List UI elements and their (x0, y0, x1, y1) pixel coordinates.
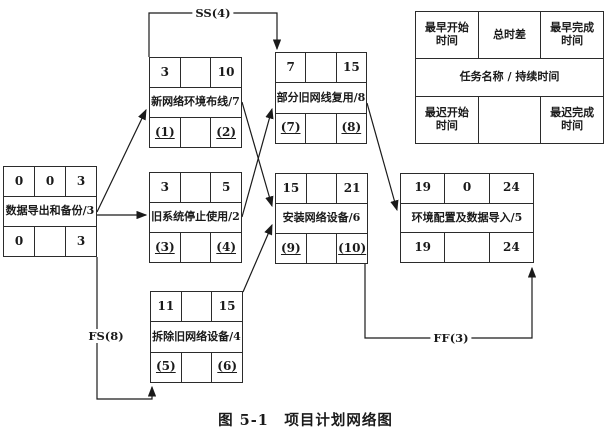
task-box-cabling: 3 10 新网络环境布线/7 (1) (2) (149, 57, 242, 148)
cell-bottom-middle (307, 234, 337, 263)
cell-total-float (181, 173, 211, 202)
cell-total-float: 0 (35, 167, 65, 196)
cell-blank-3: (3) (150, 233, 180, 262)
task-name: 旧系统停止使用/2 (150, 203, 241, 232)
legend-key-box: 最早开始时间 总时差 最早完成时间 任务名称 / 持续时间 最迟开始时间 最迟完… (415, 11, 604, 144)
cell-bottom-middle (35, 227, 65, 256)
edge-stopold-to-reuse-arrow (242, 109, 272, 217)
cell-total-float (307, 174, 337, 203)
legend-task-name-duration: 任务名称 / 持续时间 (416, 59, 603, 96)
cell-bottom-middle (445, 233, 488, 262)
cell-total-float: 0 (445, 174, 488, 203)
cell-bottom-middle (181, 118, 211, 147)
task-box-stop-old: 3 5 旧系统停止使用/2 (3) (4) (149, 172, 242, 263)
legend-bottom-middle (479, 97, 541, 143)
edge-fs-backup-to-remove-arrow (97, 257, 152, 399)
task-box-config: 19 0 24 环境配置及数据导入/5 19 24 (400, 173, 534, 263)
legend-total-float: 总时差 (479, 12, 541, 58)
cell-early-finish: 5 (211, 173, 241, 202)
edge-label-ss: SS(4) (192, 6, 233, 20)
cell-blank-8: (8) (337, 114, 366, 143)
cell-early-finish: 15 (212, 292, 242, 321)
cell-early-finish: 24 (490, 174, 533, 203)
cell-early-start: 7 (276, 53, 305, 82)
edge-ff-install-to-config-arrow (365, 264, 532, 338)
cell-blank-7: (7) (276, 114, 305, 143)
cell-blank-4: (4) (211, 233, 241, 262)
task-box-install: 15 21 安装网络设备/6 (9) (10) (275, 173, 368, 264)
task-box-backup: 0 0 3 数据导出和备份/3 0 3 (3, 166, 97, 257)
legend-early-finish: 最早完成时间 (541, 12, 603, 58)
edge-remove-to-install-arrow (243, 225, 272, 292)
cell-early-finish: 21 (337, 174, 367, 203)
task-box-remove: 11 15 拆除旧网络设备/4 (5) (6) (150, 291, 243, 383)
legend-late-finish: 最迟完成时间 (541, 97, 603, 143)
task-name: 数据导出和备份/3 (4, 197, 96, 226)
cell-early-start: 19 (401, 174, 444, 203)
cell-early-start: 0 (4, 167, 34, 196)
cell-late-finish: 24 (490, 233, 533, 262)
cell-late-start: 19 (401, 233, 444, 262)
cell-blank-9: (9) (276, 234, 306, 263)
cell-bottom-middle (181, 233, 211, 262)
cell-blank-6: (6) (212, 353, 242, 382)
cell-bottom-middle (182, 353, 212, 382)
figure-caption: 图 5-1 项目计划网络图 (0, 409, 611, 430)
cell-late-start: 0 (4, 227, 34, 256)
cell-early-finish: 15 (337, 53, 366, 82)
task-name: 环境配置及数据导入/5 (401, 204, 533, 233)
cell-early-start: 3 (150, 58, 180, 87)
task-box-reuse: 7 15 部分旧网线复用/8 (7) (8) (275, 52, 367, 144)
cell-blank-1: (1) (150, 118, 180, 147)
cell-blank-2: (2) (211, 118, 241, 147)
edge-backup-to-cabling-arrow (97, 110, 146, 212)
legend-early-start: 最早开始时间 (416, 12, 478, 58)
cell-early-start: 11 (151, 292, 181, 321)
legend-late-start: 最迟开始时间 (416, 97, 478, 143)
cell-early-finish: 3 (66, 167, 96, 196)
task-name: 部分旧网线复用/8 (276, 83, 366, 112)
cell-blank-5: (5) (151, 353, 181, 382)
cell-early-finish: 10 (211, 58, 241, 87)
cell-early-start: 3 (150, 173, 180, 202)
edge-cabling-to-install-arrow (242, 102, 272, 206)
cell-total-float (306, 53, 335, 82)
cell-total-float (182, 292, 212, 321)
cell-early-start: 15 (276, 174, 306, 203)
cell-late-finish: 3 (66, 227, 96, 256)
edge-reuse-to-config-arrow (367, 103, 397, 210)
task-name: 新网络环境布线/7 (150, 88, 241, 117)
cell-total-float (181, 58, 211, 87)
network-diagram: SS(4) FS(8) FF(3) 0 0 3 数据导出和备份/3 0 3 3 … (0, 0, 611, 440)
task-name: 拆除旧网络设备/4 (151, 322, 242, 351)
task-name: 安装网络设备/6 (276, 204, 367, 233)
cell-blank-10: (10) (337, 234, 367, 263)
edge-label-ff: FF(3) (430, 331, 471, 345)
cell-bottom-middle (306, 114, 335, 143)
edge-label-fs: FS(8) (85, 329, 126, 343)
